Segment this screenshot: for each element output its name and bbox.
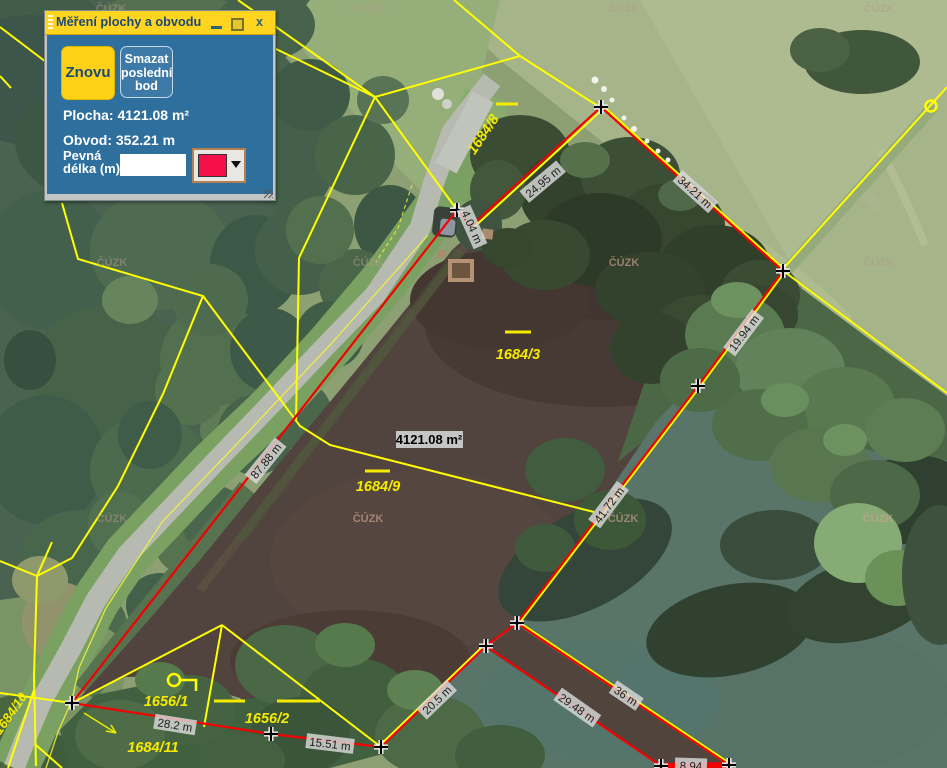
svg-text:ČÚZK: ČÚZK [609, 256, 640, 269]
svg-text:ČÚZK: ČÚZK [609, 2, 640, 15]
svg-text:ČÚZK: ČÚZK [97, 512, 128, 525]
svg-text:ČÚZK: ČÚZK [863, 512, 894, 525]
svg-text:1656/1: 1656/1 [144, 694, 188, 710]
svg-text:4121.08 m²: 4121.08 m² [396, 432, 463, 447]
svg-text:1684/3: 1684/3 [496, 347, 540, 363]
svg-text:ČÚZK: ČÚZK [353, 256, 384, 269]
svg-text:ČÚZK: ČÚZK [608, 512, 639, 525]
svg-text:1684/9: 1684/9 [356, 479, 400, 495]
svg-text:ČÚZK: ČÚZK [353, 512, 384, 525]
svg-text:ČÚZK: ČÚZK [864, 256, 895, 269]
svg-text:1656/2: 1656/2 [245, 711, 289, 727]
svg-text:ČÚZK: ČÚZK [97, 256, 128, 269]
svg-text:© ČÚZK: © ČÚZK [347, 2, 389, 15]
svg-text:8.94: 8.94 [679, 761, 702, 768]
svg-text:1684/11: 1684/11 [127, 740, 178, 756]
svg-text:ČÚZK: ČÚZK [864, 2, 895, 15]
